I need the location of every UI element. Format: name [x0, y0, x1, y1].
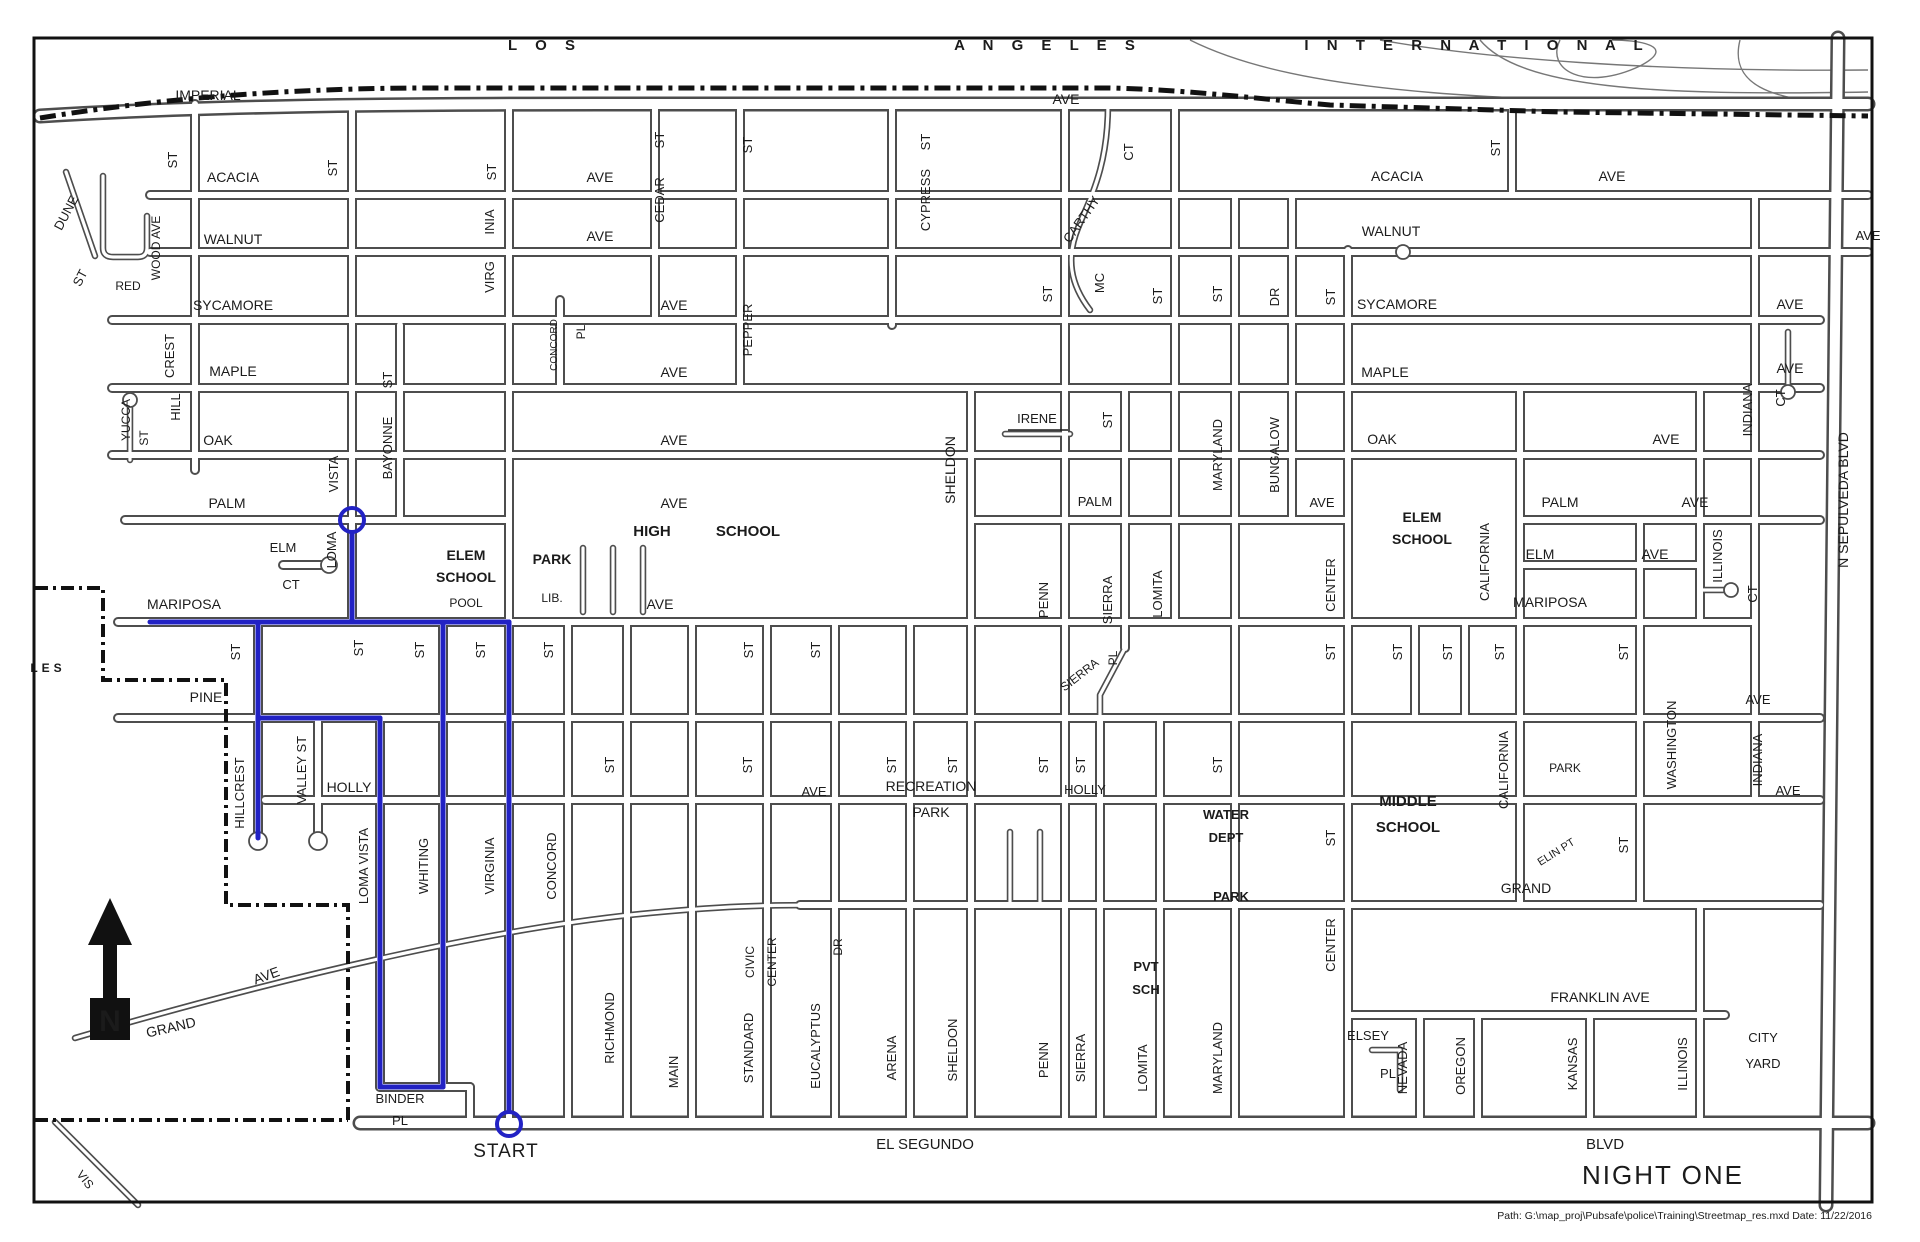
map-label: ARENA — [884, 1035, 899, 1080]
map-label: PARK — [533, 551, 572, 567]
map-label: AVE — [587, 169, 614, 185]
map-label: CT — [282, 577, 299, 592]
map-label: AVE — [801, 784, 826, 799]
map-label: LIB. — [541, 591, 562, 605]
map-label: PL — [574, 324, 588, 339]
map-label: AVE — [587, 228, 614, 244]
map-label: YUCCA — [119, 399, 133, 441]
map-label: AVE — [1775, 783, 1800, 798]
map-label: ST — [602, 757, 617, 774]
map-label: BAYONNE — [380, 416, 395, 479]
map-label: MAPLE — [209, 363, 256, 379]
map-label: CREST — [162, 334, 177, 378]
map-label: AVE — [1053, 91, 1080, 107]
map-label: PINE — [190, 689, 223, 705]
map-label: ST — [1210, 757, 1225, 774]
map-label: DEPT — [1209, 830, 1244, 845]
map-label: VISTA — [326, 455, 341, 492]
map-label: WATER — [1203, 807, 1250, 822]
map-label: ST — [325, 160, 340, 177]
map-label: WHITING — [416, 838, 431, 894]
map-label: SHELDON — [945, 1019, 960, 1082]
map-label: ST — [808, 642, 823, 659]
map-label: SYCAMORE — [1357, 296, 1437, 312]
map-label: PALM — [1541, 494, 1578, 510]
street-fill — [103, 176, 147, 257]
map-label: ST — [1073, 757, 1088, 774]
map-label: ST — [165, 152, 180, 169]
map-label: PALM — [1078, 494, 1112, 509]
map-label: LOMA — [324, 531, 339, 568]
map-label: FRANKLIN AVE — [1550, 989, 1649, 1005]
map-label: LOMITA — [1150, 570, 1165, 618]
map-label: HILL — [168, 393, 183, 420]
map-label: MAIN — [666, 1056, 681, 1089]
map-label: PENN — [1036, 582, 1051, 618]
map-label: ST — [1440, 644, 1455, 661]
map-label: RICHMOND — [602, 992, 617, 1064]
map-label: ST — [740, 137, 755, 154]
map-label: SCHOOL — [716, 523, 780, 540]
map-label: SCHOOL — [1392, 531, 1452, 547]
map-label: INDIANA — [1740, 383, 1755, 436]
map-label: VIS — [74, 1168, 97, 1192]
map-label: ST — [652, 132, 667, 149]
north-arrow-letter: N — [99, 1005, 121, 1038]
map-label: ST — [351, 640, 366, 657]
map-label: ST — [484, 164, 499, 181]
map-label: PL — [1380, 1066, 1396, 1081]
map-label: PL — [1106, 650, 1120, 665]
map-label: GRAND — [1501, 880, 1552, 896]
map-label: BUNGALOW — [1267, 416, 1282, 493]
map-label: CEDAR — [652, 177, 667, 223]
map-label: ST — [1100, 412, 1115, 429]
map-label: SYCAMORE — [193, 297, 273, 313]
map-label: CONCORD — [549, 319, 560, 371]
map-label: WOOD AVE — [149, 216, 163, 280]
map-label: ST — [1210, 286, 1225, 303]
map-label: MARYLAND — [1210, 1022, 1225, 1094]
map-label: ST — [137, 430, 151, 446]
map-label: HILLCREST — [232, 757, 247, 829]
map-label: MC — [1092, 273, 1107, 293]
map-label: CYPRESS — [918, 169, 933, 231]
map-label: AVE — [1777, 360, 1804, 376]
map-label: ELEM — [1403, 509, 1442, 525]
map-label: EL SEGUNDO — [876, 1136, 974, 1153]
north-arrow: N — [88, 898, 132, 1040]
map-label: MARIPOSA — [1513, 594, 1588, 610]
map-label: CT — [1745, 585, 1760, 602]
map-label: PVT — [1133, 959, 1158, 974]
map-label: BINDER — [375, 1091, 424, 1106]
map-label: ST — [741, 642, 756, 659]
el-segundo-street-map: IMPERIALAVEACACIAAVEACACIAAVESTSTSTSTCED… — [0, 0, 1920, 1242]
banner-angeles: A N G E L E S — [954, 37, 1142, 54]
map-label: ST — [1390, 644, 1405, 661]
map-label: AVE — [1599, 168, 1626, 184]
map-label: WALNUT — [204, 231, 263, 247]
map-label: PARK — [1549, 761, 1581, 775]
dead-end-bulb — [309, 832, 327, 850]
map-label: HOLLY — [327, 779, 373, 795]
map-label: CENTER — [1323, 558, 1338, 611]
map-label: SIERRA — [1073, 1033, 1088, 1082]
map-label: PALM — [208, 495, 245, 511]
dead-end-bulb — [1724, 583, 1738, 597]
map-label: ST — [1492, 644, 1507, 661]
map-label: ST — [1040, 286, 1055, 303]
map-label: VIRG — [482, 261, 497, 293]
freeway-ramp — [1738, 40, 1868, 104]
map-label: PEPPER — [740, 304, 755, 357]
map-label: DR — [831, 938, 845, 956]
footer-path-text: Path: G:\map_proj\Pubsafe\police\Trainin… — [1497, 1210, 1872, 1222]
dead-end-bulb — [1396, 245, 1410, 259]
map-label: ST — [884, 757, 899, 774]
map-label: WASHINGTON — [1664, 701, 1679, 790]
map-label: LOMA VISTA — [356, 828, 371, 905]
map-label: LOMITA — [1135, 1044, 1150, 1092]
map-label: NEVADA — [1395, 1041, 1410, 1094]
map-label: AVE — [647, 596, 674, 612]
map-label: CITY — [1748, 1030, 1778, 1045]
map-label: AVE — [661, 297, 688, 313]
map-label: CENTER — [765, 937, 779, 987]
map-label: MAPLE — [1361, 364, 1408, 380]
banner-international: I N T E R N A T I O N A L — [1304, 37, 1649, 54]
map-label: MARYLAND — [1210, 419, 1225, 491]
map-label: ST — [740, 757, 755, 774]
map-label: ST — [1323, 644, 1338, 661]
city-boundary — [35, 88, 1868, 1120]
map-label: ST — [1323, 830, 1338, 847]
map-label: ST — [473, 642, 488, 659]
map-label: AVE — [661, 364, 688, 380]
map-label: AVE — [1642, 546, 1669, 562]
map-label: ST — [1323, 289, 1338, 306]
map-label: MIDDLE — [1379, 793, 1437, 810]
map-label: ELSEY — [1347, 1028, 1389, 1043]
map-label: AVE — [661, 495, 688, 511]
map-label: EUCALYPTUS — [808, 1003, 823, 1089]
map-label: KANSAS — [1565, 1037, 1580, 1090]
map-label: ST — [1616, 837, 1631, 854]
map-label: BLVD — [1586, 1136, 1624, 1153]
map-label: ELIN PT — [1536, 836, 1578, 868]
map-label: CALIFORNIA — [1477, 523, 1492, 601]
map-label: STANDARD — [741, 1013, 756, 1084]
map-label: ELM — [270, 540, 297, 555]
map-label: PENN — [1036, 1042, 1051, 1078]
map-label: POOL — [449, 596, 483, 610]
map-label: OREGON — [1453, 1037, 1468, 1095]
map-label: AVE — [1745, 692, 1770, 707]
map-label: ST — [412, 642, 427, 659]
street-fill — [55, 1122, 138, 1205]
map-label: HIGH — [633, 523, 671, 540]
map-label: MARIPOSA — [147, 596, 222, 612]
map-label: AVE — [1653, 431, 1680, 447]
map-label: HOLLY — [1064, 782, 1106, 797]
map-label: ST — [918, 134, 933, 151]
map-label: AVE — [1682, 494, 1709, 510]
map-label: ST — [945, 757, 960, 774]
map-label: AVE — [661, 432, 688, 448]
map-label: ST — [1150, 288, 1165, 305]
map-label: SCH — [1132, 982, 1159, 997]
start-label: START — [473, 1141, 539, 1162]
map-label: ST — [380, 372, 395, 389]
map-label: ILLINOIS — [1710, 529, 1725, 583]
map-label: DR — [1267, 288, 1282, 307]
map-label: CALIFORNIA — [1496, 731, 1511, 809]
map-label: ST — [1488, 140, 1503, 157]
map-label: CT — [1121, 143, 1136, 160]
map-label: AVE — [1855, 228, 1880, 243]
map-label: IMPERIAL — [175, 87, 241, 103]
map-label: INIA — [482, 209, 497, 235]
map-label: AVE — [1309, 495, 1334, 510]
map-label: AVE — [1777, 296, 1804, 312]
map-label: SCHOOL — [436, 569, 496, 585]
map-label: PARK — [1213, 889, 1249, 904]
city-boundary-west — [35, 588, 348, 1120]
map-label: ST — [1036, 757, 1051, 774]
map-label: ACACIA — [1371, 168, 1424, 184]
map-label: SCHOOL — [1376, 819, 1440, 836]
map-label: CENTER — [1323, 918, 1338, 971]
map-label: SHELDON — [942, 436, 958, 504]
map-label: ST — [541, 642, 556, 659]
map-label: INDIANA — [1750, 733, 1765, 786]
map-label: N SEPULVEDA BLVD — [1835, 432, 1851, 568]
map-label: WALNUT — [1362, 223, 1421, 239]
map-label: ILLINOIS — [1675, 1037, 1690, 1091]
map-label: VALLEY ST — [294, 736, 309, 804]
night-one-label: NIGHT ONE — [1582, 1160, 1744, 1190]
map-label: RECREATION — [886, 778, 977, 794]
map-label: IRENE — [1017, 411, 1057, 426]
map-label: CT — [1773, 389, 1788, 406]
map-label: OAK — [203, 432, 233, 448]
street-fill — [1826, 38, 1838, 1205]
map-label: YARD — [1745, 1056, 1780, 1071]
banner-los: L O S — [508, 37, 582, 54]
street-map-page: IMPERIALAVEACACIAAVEACACIAAVESTSTSTSTCED… — [0, 0, 1920, 1242]
map-label: PARK — [912, 804, 950, 820]
map-label: OAK — [1367, 431, 1397, 447]
map-label: ST — [70, 267, 91, 289]
map-label: ELM — [1526, 546, 1555, 562]
map-label: VIRGINIA — [482, 837, 497, 894]
map-label: LES — [30, 661, 65, 675]
map-label: ACACIA — [207, 169, 260, 185]
map-label: ST — [228, 644, 243, 661]
map-label: CONCORD — [544, 832, 559, 899]
map-label: CIVIC — [743, 946, 757, 978]
map-label: PL — [392, 1113, 408, 1128]
map-label: ST — [1616, 644, 1631, 661]
street-casing — [103, 176, 147, 257]
map-label: SIERRA — [1100, 575, 1115, 624]
map-label: RED — [115, 279, 141, 293]
map-label: ELEM — [447, 547, 486, 563]
